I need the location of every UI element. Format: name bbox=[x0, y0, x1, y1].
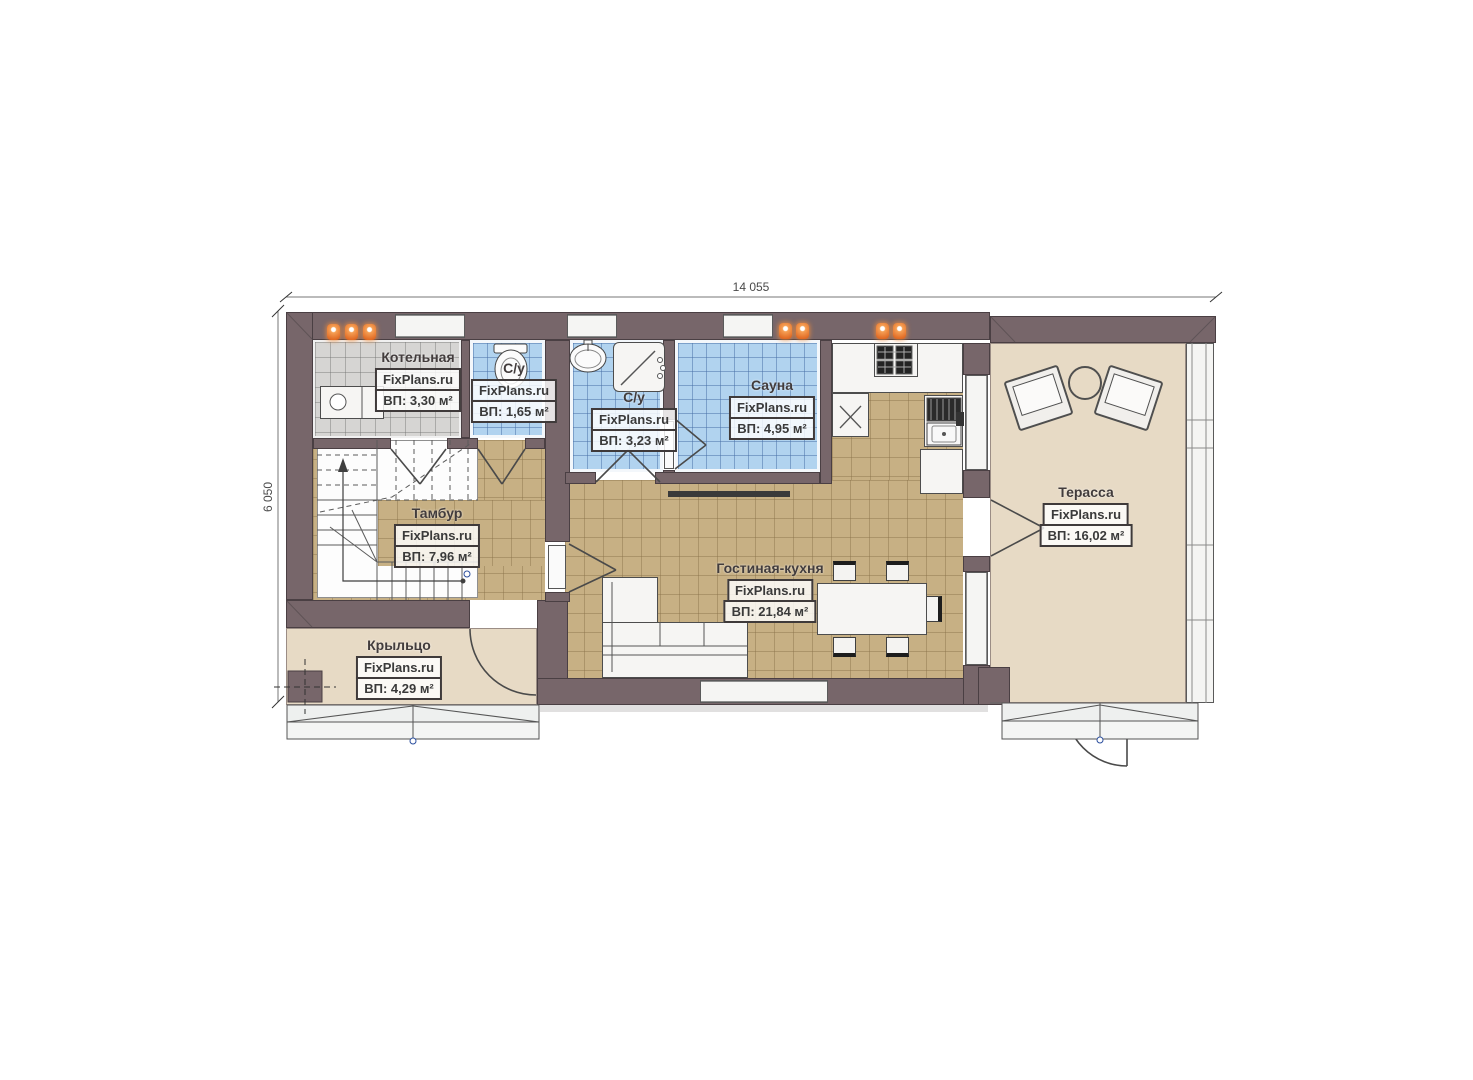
room-label-wc-small: С/у FixPlans.ru ВП: 1,65 м² bbox=[471, 360, 557, 423]
area-badge: ВП: 21,84 м² bbox=[724, 600, 817, 623]
dimension-height-label: 6 050 bbox=[261, 467, 275, 527]
area-badge: ВП: 4,95 м² bbox=[729, 417, 815, 440]
window-boiler bbox=[395, 314, 465, 338]
room-name: С/у bbox=[591, 389, 677, 405]
wall-living-terrace-1 bbox=[963, 343, 990, 375]
floor-plan: 14 055 6 050 Котельная FixPlans.ru ВП: 3… bbox=[0, 0, 1473, 1080]
radiator-icon bbox=[893, 323, 906, 339]
area-badge: ВП: 4,29 м² bbox=[356, 677, 442, 700]
shower-tray bbox=[613, 342, 665, 392]
watermark-badge: FixPlans.ru bbox=[591, 408, 677, 431]
radiator-icon bbox=[363, 324, 376, 340]
room-name: Терасса bbox=[1040, 484, 1133, 500]
room-label-boiler: Котельная FixPlans.ru ВП: 3,30 м² bbox=[375, 349, 461, 412]
building-shadow bbox=[540, 705, 988, 712]
dining-table bbox=[817, 583, 927, 635]
kitchen-sink-unit bbox=[924, 395, 963, 447]
terrace-chair-seat bbox=[1104, 373, 1154, 416]
window-shower bbox=[567, 314, 617, 338]
wall-sauna-bottom bbox=[655, 472, 820, 484]
wall-vestibule-right-lower bbox=[545, 592, 570, 602]
radiator-icon bbox=[796, 323, 809, 339]
wall-boiler-bottom-c bbox=[525, 438, 545, 449]
door-leaf-vestibule-living bbox=[548, 545, 566, 589]
wall-bath-bottom-a bbox=[565, 472, 596, 484]
watermark-badge: FixPlans.ru bbox=[1043, 503, 1129, 526]
room-name: Котельная bbox=[375, 349, 461, 365]
kitchen-counter-corner bbox=[832, 393, 869, 437]
wall-left bbox=[286, 312, 313, 600]
room-label-sauna: Сауна FixPlans.ru ВП: 4,95 м² bbox=[729, 377, 815, 440]
wall-top-terrace bbox=[990, 316, 1216, 343]
room-label-wc-shower: С/у FixPlans.ru ВП: 3,23 м² bbox=[591, 389, 677, 452]
radiator-icon bbox=[345, 324, 358, 340]
dining-chair bbox=[886, 561, 909, 581]
wall-boiler-bottom-a bbox=[313, 438, 391, 449]
dining-chair bbox=[925, 596, 942, 622]
dimension-width-label: 14 055 bbox=[701, 280, 801, 294]
window-sauna bbox=[723, 314, 773, 338]
room-name: Тамбур bbox=[394, 505, 480, 521]
window-kitchen-terrace bbox=[965, 375, 988, 470]
wall-sauna-right bbox=[820, 340, 832, 484]
area-badge: ВП: 3,23 м² bbox=[591, 429, 677, 452]
wall-living-terrace-3 bbox=[963, 556, 990, 572]
area-badge: ВП: 7,96 м² bbox=[394, 545, 480, 568]
area-badge: ВП: 3,30 м² bbox=[375, 389, 461, 412]
dining-chair bbox=[833, 561, 856, 581]
room-label-vestibule: Тамбур FixPlans.ru ВП: 7,96 м² bbox=[394, 505, 480, 568]
window-living-south bbox=[700, 680, 828, 703]
watermark-badge: FixPlans.ru bbox=[471, 379, 557, 402]
radiator-icon bbox=[779, 323, 792, 339]
pillar-terrace-bottom-left bbox=[978, 667, 1010, 705]
area-badge: ВП: 1,65 м² bbox=[471, 400, 557, 423]
room-label-terrace: Терасса FixPlans.ru ВП: 16,02 м² bbox=[1040, 484, 1133, 547]
watermark-badge: FixPlans.ru bbox=[394, 524, 480, 547]
room-name: С/у bbox=[471, 360, 557, 376]
radiator-icon bbox=[876, 323, 889, 339]
terrace-round-table bbox=[1068, 366, 1102, 400]
room-name: Сауна bbox=[729, 377, 815, 393]
area-badge: ВП: 16,02 м² bbox=[1040, 524, 1133, 547]
stove bbox=[874, 343, 918, 377]
sofa-seat bbox=[602, 622, 748, 678]
watermark-badge: FixPlans.ru bbox=[375, 368, 461, 391]
room-name: Гостиная-кухня bbox=[716, 560, 823, 576]
room-label-living-kitchen: Гостиная-кухня FixPlans.ru ВП: 21,84 м² bbox=[716, 560, 823, 623]
radiator-icon bbox=[327, 324, 340, 340]
room-label-porch: Крыльцо FixPlans.ru ВП: 4,29 м² bbox=[356, 637, 442, 700]
porch-steps bbox=[287, 705, 539, 744]
wall-living-terrace-2 bbox=[963, 470, 990, 498]
room-name: Крыльцо bbox=[356, 637, 442, 653]
watermark-badge: FixPlans.ru bbox=[729, 396, 815, 419]
terrace-chair-seat bbox=[1012, 373, 1062, 416]
wall-boiler-wc-divider bbox=[461, 340, 470, 438]
glazing-terrace-right bbox=[1186, 343, 1214, 703]
wall-boiler-bottom-b bbox=[447, 438, 478, 449]
kitchen-cabinet bbox=[920, 449, 963, 494]
terrace-steps bbox=[1002, 703, 1198, 743]
dining-chair bbox=[886, 637, 909, 657]
dining-chair bbox=[833, 637, 856, 657]
watermark-badge: FixPlans.ru bbox=[727, 579, 813, 602]
window-living-terrace bbox=[965, 572, 988, 665]
watermark-badge: FixPlans.ru bbox=[356, 656, 442, 679]
wall-vestibule-bottom bbox=[286, 600, 470, 628]
